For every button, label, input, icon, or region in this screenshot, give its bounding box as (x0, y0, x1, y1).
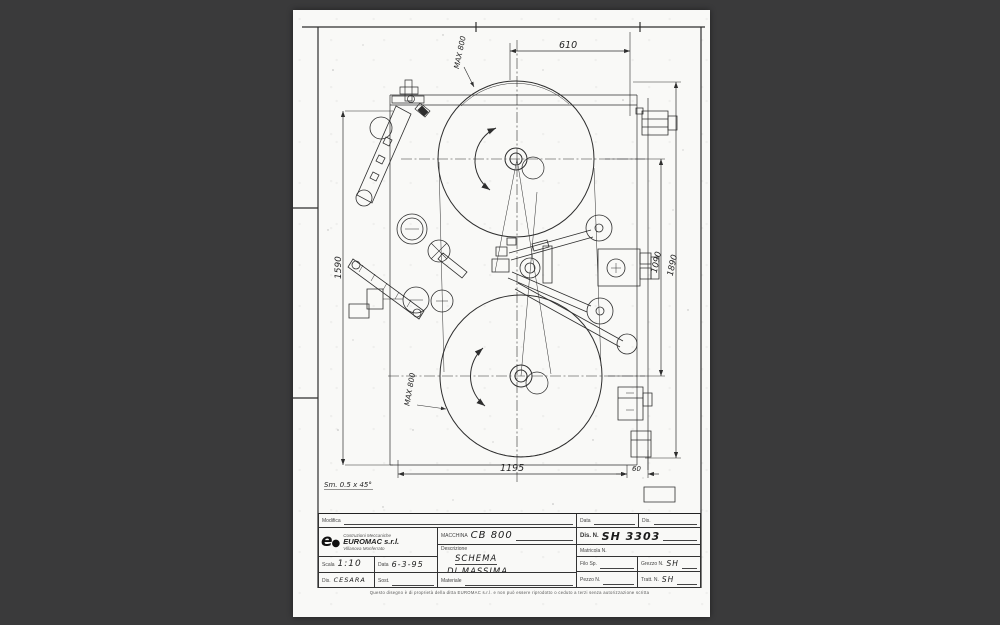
data-value: 6-3-95 (392, 561, 424, 569)
disegnatore-value: CESARA (334, 577, 366, 584)
left-rollers (349, 214, 467, 318)
svg-text:MAX 800: MAX 800 (452, 35, 468, 70)
dim-max800-bottom: MAX 800 (402, 372, 446, 409)
sost-cell: Sost. (375, 573, 437, 588)
svg-text:610: 610 (559, 40, 577, 51)
filo-cell: Filo Sp. (577, 557, 638, 571)
dim-1195: 1195 (398, 450, 648, 478)
descrizione-cell: Descrizione SCHEMA DI MASSIMA (438, 545, 576, 573)
modifica-cell: Modifica (319, 514, 577, 527)
data-cell: Data 6-3-95 (375, 557, 437, 572)
rev-data-cell: Data (577, 514, 639, 527)
rev-dis-label: Dis. (642, 518, 651, 524)
company-city: Villanova Monferrato (343, 546, 399, 551)
grezzo-value: SH (667, 560, 679, 568)
center-lines (388, 40, 645, 482)
svg-text:Sm. 0.5 x 45°: Sm. 0.5 x 45° (324, 481, 372, 489)
blade-guide-mechanism (492, 215, 637, 354)
dim-max800-top: MAX 800 (452, 35, 474, 87)
screenshot-background: 610 MAX 800 1590 1090 (0, 0, 1000, 625)
lower-left-arm (348, 259, 424, 319)
property-notice: Questo disegno è di proprietà della ditt… (318, 590, 701, 595)
scala-value: 1:10 (338, 560, 362, 569)
euromac-logo: e● (321, 535, 339, 549)
materiale-cell: Materiale (438, 573, 576, 588)
title-block-middle: MACCHINA CB 800 Descrizione SCHEMA DI MA… (438, 528, 577, 588)
revision-box (644, 487, 675, 502)
title-block-left: e● Costruzioni Meccaniche EUROMAC s.r.l.… (319, 528, 438, 588)
svg-text:MAX 800: MAX 800 (402, 372, 417, 407)
chamfer-note: Sm. 0.5 x 45° (324, 481, 373, 490)
pezzo-cell: Pezzo N. (577, 572, 638, 588)
title-block: Modifica Data Dis. e● (318, 513, 701, 588)
svg-text:1195: 1195 (500, 463, 524, 474)
dis-n-cell: Dis. N. SH 3303 (577, 528, 700, 545)
macchina-value: CB 800 (471, 531, 513, 541)
top-left-bracket (392, 80, 430, 117)
tratt-cell: Tratt. N. SH (638, 572, 700, 588)
svg-text:1090: 1090 (650, 251, 664, 274)
scala-cell: Scala 1:10 (319, 557, 375, 572)
modifica-line (344, 516, 573, 525)
tratt-value: SH (662, 576, 674, 584)
macchina-cell: MACCHINA CB 800 (438, 528, 576, 545)
svg-text:1890: 1890 (666, 254, 680, 277)
modifica-label: Modifica (322, 518, 341, 524)
rev-data-label: Data (580, 518, 591, 524)
descrizione-value1: SCHEMA (455, 555, 497, 565)
company-block: e● Costruzioni Meccaniche EUROMAC s.r.l.… (319, 528, 437, 557)
grezzo-cell: Grezzo N. SH (638, 557, 700, 571)
dis-n-value: SH 3303 (602, 531, 661, 542)
matricola-cell: Matricola N. (577, 545, 700, 557)
right-clamps (598, 108, 677, 457)
disegnatore-cell: Dis. CESARA (319, 573, 375, 588)
svg-text:1590: 1590 (334, 256, 344, 279)
sheet-frame (293, 22, 705, 588)
company-name: EUROMAC s.r.l. (343, 538, 399, 547)
dim-60: 60 (616, 465, 659, 474)
tension-arm (356, 106, 411, 206)
title-block-right: Dis. N. SH 3303 Matricola N. Filo Sp. (577, 528, 700, 588)
rev-dis-cell: Dis. (639, 514, 700, 527)
svg-text:60: 60 (632, 465, 641, 473)
drawing-sheet: 610 MAX 800 1590 1090 (293, 10, 710, 617)
